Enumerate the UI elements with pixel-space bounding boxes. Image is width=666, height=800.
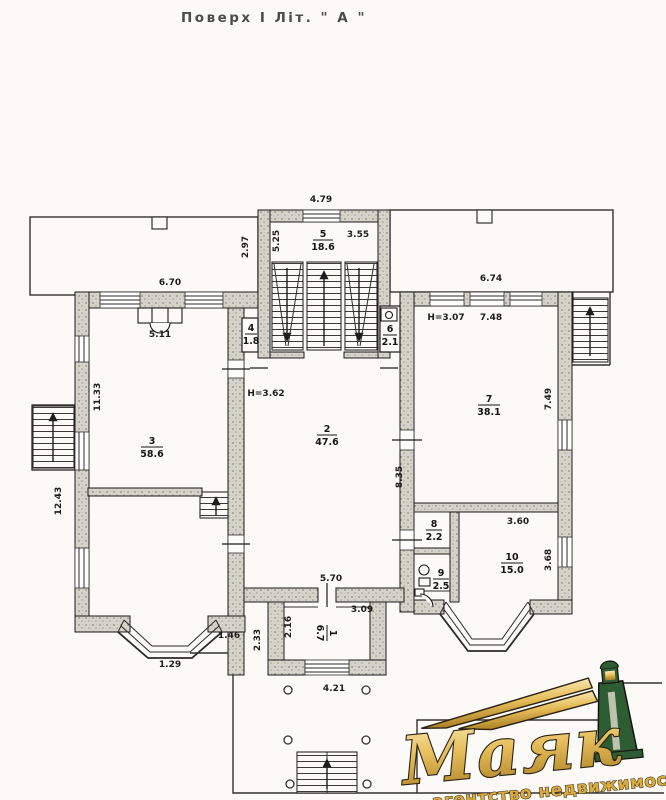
dim-room10-top: 3.60 <box>507 517 529 527</box>
room5-area: 18.6 <box>311 242 335 253</box>
room10-number: 10 <box>505 552 519 563</box>
scanned-floor-plan-page: Поверх І Літ. " А " <box>0 0 666 800</box>
room8-area: 2.2 <box>426 532 443 543</box>
bay-window-right <box>440 602 534 651</box>
dim-bay-offset: 1.46 <box>218 631 240 641</box>
room3-number: 3 <box>149 436 156 447</box>
room9-number: 9 <box>438 568 445 579</box>
room9-area: 2.5 <box>433 581 450 592</box>
dim-left-wall-upper: 11.33 <box>93 383 103 411</box>
chimney-notch-right <box>477 210 492 223</box>
room4-area: 1.8 <box>243 336 260 347</box>
wc-room6-icon <box>381 308 397 321</box>
dim-right-wing-top: 6.74 <box>480 274 502 284</box>
agency-logo: Маяк агентство недвижимости <box>392 654 666 800</box>
window <box>558 537 572 567</box>
dim-left-wall-lower: 12.43 <box>54 487 64 515</box>
room-label-3: 3 58.6 <box>140 436 164 460</box>
floor-plan-svg: Поверх І Літ. " А " <box>0 0 666 800</box>
room2-area: 47.6 <box>315 437 339 448</box>
room5-number: 5 <box>320 229 327 240</box>
room2-number: 2 <box>324 424 331 435</box>
window <box>470 292 504 306</box>
dim-fireplace: 5.11 <box>149 330 171 340</box>
dim-room2-bottom: 5.70 <box>320 574 342 584</box>
window <box>303 210 340 222</box>
dim-room1-outer: 2.33 <box>253 629 263 651</box>
dim-porch: 4.21 <box>323 684 345 694</box>
room1-number: 1 <box>327 630 338 637</box>
room6-area: 2.1 <box>382 337 399 348</box>
dim-left-wing-top: 6.70 <box>159 278 181 288</box>
window <box>558 420 572 450</box>
window <box>510 292 542 306</box>
dim-terrace-left: 2.97 <box>241 236 251 258</box>
room-label-9: 9 2.5 <box>433 568 450 592</box>
dim-room2-side: 8.35 <box>395 466 405 488</box>
room6-number: 6 <box>387 324 394 335</box>
room-label-10: 10 15.0 <box>500 552 524 576</box>
dim-room5-depth: 5.25 <box>272 230 282 252</box>
page-title: Поверх І Літ. " А " <box>181 10 367 26</box>
room4-number: 4 <box>248 323 255 334</box>
room-label-7: 7 38.1 <box>477 394 500 418</box>
room-label-1: 1 6.7 <box>314 625 338 642</box>
external-stairs-right <box>573 298 608 362</box>
room-label-2: 2 47.6 <box>315 424 339 448</box>
dim-room5-width: 3.55 <box>347 230 369 240</box>
dim-stairhall-top: 4.79 <box>310 195 332 205</box>
external-stairs-left <box>33 406 74 468</box>
window <box>185 292 223 308</box>
window <box>100 292 140 308</box>
internal-stairs-room3 <box>200 492 231 518</box>
room-label-8: 8 2.2 <box>426 519 443 543</box>
dim-room7-side: 7.49 <box>544 388 554 410</box>
room10-area: 15.0 <box>500 565 524 576</box>
window <box>75 432 89 470</box>
main-staircase <box>272 262 377 350</box>
window <box>305 660 349 675</box>
dim-room1-top: 3.09 <box>351 605 373 615</box>
room8-number: 8 <box>431 519 438 530</box>
room1-area: 6.7 <box>314 625 325 642</box>
chimney-notch-left <box>152 217 167 229</box>
window <box>75 336 89 362</box>
dim-room7-top: 7.48 <box>480 313 502 323</box>
window <box>430 292 464 306</box>
room7-area: 38.1 <box>477 407 500 418</box>
window <box>75 548 89 588</box>
height-room2: Н=3.62 <box>247 389 284 399</box>
dim-bay-front: 1.29 <box>159 660 181 670</box>
dim-room1-side: 2.16 <box>284 616 294 638</box>
height-room7: Н=3.07 <box>427 313 464 323</box>
room7-number: 7 <box>486 394 493 405</box>
terrace-stairs <box>297 752 357 793</box>
room3-area: 58.6 <box>140 449 164 460</box>
dim-room10-side: 3.68 <box>544 549 554 571</box>
room-label-5: 5 18.6 <box>311 229 335 253</box>
